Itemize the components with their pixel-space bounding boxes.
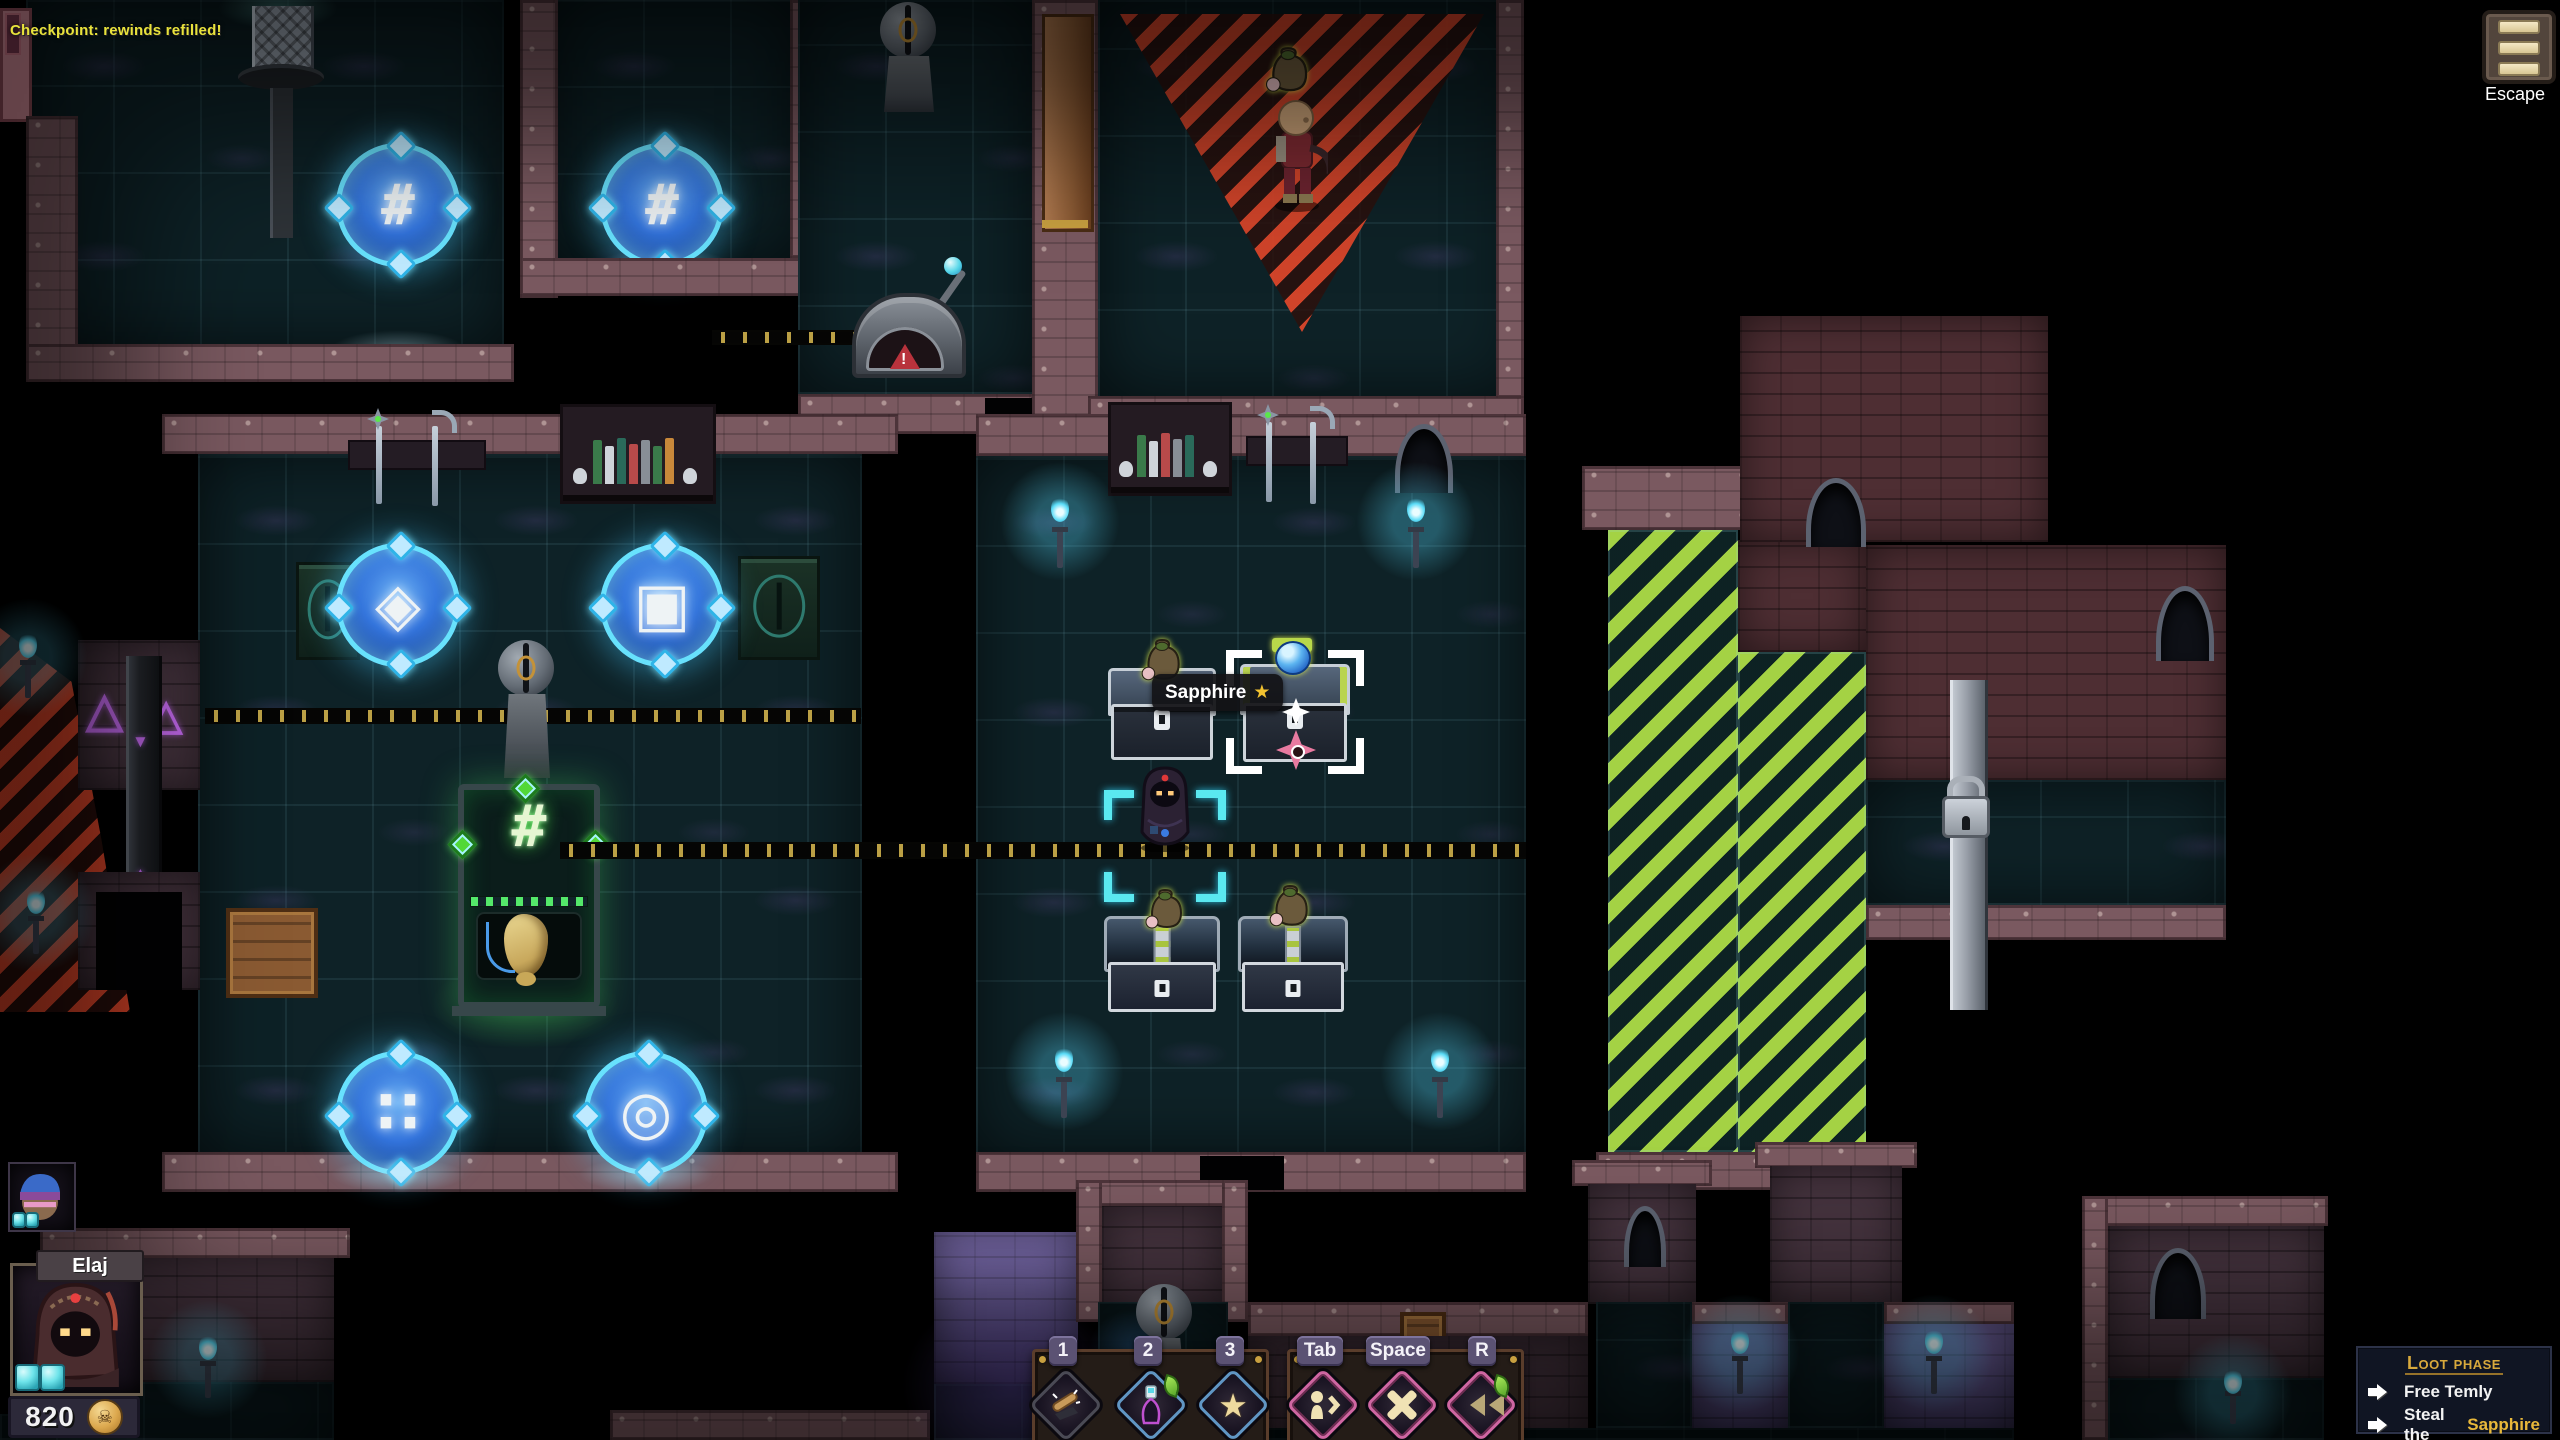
cancel-x-icon <box>1381 1384 1423 1426</box>
torch-flame-icon <box>1407 496 1425 522</box>
bookshelf <box>1108 402 1232 496</box>
hotkey-1[interactable]: 1 <box>1049 1336 1077 1366</box>
torch-arm <box>200 1361 216 1366</box>
torch-arm <box>28 916 44 921</box>
torch-arm <box>1052 527 1068 532</box>
game-viewport: # # ! <box>0 0 2560 1440</box>
eye-statue-e <box>498 640 554 696</box>
alarm-lever[interactable]: ! <box>852 282 958 378</box>
eye-statue-j <box>1136 1284 1192 1340</box>
scythe-icon <box>1310 422 1316 504</box>
tile-corner <box>1104 790 1134 820</box>
standing-torch <box>1404 496 1428 568</box>
torch-flame-icon <box>19 632 37 658</box>
chest-lock-icon <box>1155 980 1170 997</box>
torch-stem <box>2230 1395 2236 1424</box>
portal-ring[interactable]: ◎ <box>584 1051 708 1175</box>
wall-e-bottom <box>162 1152 898 1192</box>
objective-text: Free Temly <box>2404 1382 2493 1402</box>
wall-br-top-2 <box>1755 1142 1917 1168</box>
swap-character-icon <box>1302 1384 1344 1426</box>
wall-br-block-2 <box>1770 1166 1902 1304</box>
hotkey-tab[interactable]: Tab <box>1297 1336 1343 1366</box>
loot-bag-icon[interactable] <box>1142 888 1188 934</box>
staff-gem-icon <box>375 416 381 422</box>
staff-gem-icon <box>1265 412 1271 418</box>
gem-icon <box>40 1364 65 1391</box>
temly-satchel-icon <box>516 972 536 986</box>
player-portrait[interactable] <box>10 1263 143 1396</box>
wall-green-notch <box>1738 540 1866 652</box>
skull-bookend-icon <box>683 468 697 484</box>
book-spine <box>605 446 614 484</box>
hazard-zone-left <box>1608 530 1738 1152</box>
loot-bag-icon[interactable] <box>1262 46 1314 98</box>
doorway-e-left <box>96 892 182 990</box>
skull-bookend-icon <box>573 468 587 484</box>
room-j-frame-right <box>1222 1180 1248 1322</box>
locked-gate-track <box>1950 680 1988 1010</box>
torch-flame-icon <box>27 888 45 914</box>
objectives-title: Loot phase <box>2405 1354 2503 1375</box>
objective-steal-sapphire: Steal the Sapphire <box>2368 1405 2540 1440</box>
panel-stud <box>1510 1356 1517 1363</box>
tile-corner <box>1196 872 1226 902</box>
portal-hash-icon: # <box>645 173 679 238</box>
wall-right-upper <box>1740 316 2048 542</box>
padlock-icon[interactable] <box>1936 742 1996 838</box>
torch-flame-icon <box>1731 1328 1749 1354</box>
gem-icon <box>12 1212 26 1228</box>
eye-banner <box>738 556 820 660</box>
standing-torch <box>1428 1046 1452 1118</box>
book-spine <box>653 446 662 484</box>
standing-torch <box>1048 496 1072 568</box>
objective-text: Steal the <box>2404 1405 2462 1440</box>
torch-arm <box>1926 1356 1942 1361</box>
wall-torch <box>1728 1328 1752 1394</box>
book-spine <box>629 444 638 484</box>
wall-k <box>2108 1226 2324 1378</box>
objective-free-temly: Free Temly <box>2368 1382 2540 1402</box>
panel-stud <box>1039 1356 1046 1363</box>
hazard-zone-right <box>1738 652 1866 1152</box>
star-ability-icon: ★ <box>1212 1384 1254 1426</box>
rewind-icon <box>1460 1384 1502 1426</box>
hotkey-space[interactable]: Space <box>1366 1336 1430 1366</box>
floor-k <box>2108 1378 2324 1440</box>
book-spine <box>1137 435 1146 477</box>
rack-bar <box>1246 436 1348 466</box>
hotkey-3[interactable]: 3 <box>1216 1336 1244 1366</box>
machine-cavity <box>476 912 582 980</box>
padlock-keyhole <box>1962 816 1970 830</box>
portal-hash-icon: # <box>381 173 415 238</box>
floor-br-1 <box>1596 1302 1692 1428</box>
tooltip-star-icon: ★ <box>1253 681 1270 704</box>
wall-b-left <box>520 0 558 298</box>
wall-br-cap-2 <box>1884 1302 2014 1324</box>
menu-bar-icon <box>2498 20 2540 34</box>
polearm-icon <box>432 426 438 506</box>
torch-flame-icon <box>1055 1046 1073 1072</box>
portal-dots-icon: ∷ <box>377 1078 419 1148</box>
chain-track-c <box>712 330 862 345</box>
torch-stem <box>1437 1081 1443 1118</box>
panel-stud <box>1255 1356 1262 1363</box>
portal-square-icon: ▣ <box>634 570 691 640</box>
torch-stem <box>33 920 39 954</box>
track-arrow-icon: ▼ <box>132 732 149 752</box>
triangle-rune-icon: △ <box>86 682 123 738</box>
gem-icon <box>15 1364 40 1391</box>
torch-stem <box>1057 531 1063 568</box>
wall-br-torchwall-2 <box>1884 1324 2014 1440</box>
torch-arm <box>1732 1356 1748 1361</box>
gold-counter: 820 ☠ <box>8 1396 140 1438</box>
torch-stem <box>205 1365 211 1398</box>
wall-b-bottom <box>520 258 806 296</box>
player-nameplate: Elaj <box>36 1250 144 1282</box>
machine-led-strip <box>470 896 588 907</box>
torch-stem <box>1931 1360 1937 1394</box>
torch-arm <box>1056 1077 1072 1082</box>
wall-topleft-bottom <box>26 344 514 382</box>
escape-label: Escape <box>2470 84 2560 105</box>
wall-topleft-side <box>26 116 78 348</box>
item-tooltip: Sapphire ★ <box>1152 674 1283 711</box>
wall-k-left <box>2082 1196 2108 1440</box>
cloak-potion-icon <box>1130 1384 1172 1426</box>
wall-e-top <box>162 414 898 454</box>
objective-arrow-icon <box>2368 1384 2395 1400</box>
door-pillar-band <box>1042 220 1088 228</box>
hotkey-2[interactable]: 2 <box>1134 1336 1162 1366</box>
book-spine <box>1173 439 1182 477</box>
room-j-frame-left <box>1076 1180 1102 1322</box>
torch-flame-icon <box>199 1334 217 1360</box>
menu-bar-icon <box>2498 62 2540 76</box>
right-corridor-floor <box>1866 780 2226 905</box>
wall-torch <box>1922 1328 1946 1394</box>
checkpoint-toast: Checkpoint: rewinds refilled! <box>10 22 222 39</box>
torch-stem <box>1061 1081 1067 1118</box>
book-spine <box>665 438 674 484</box>
torch-flame-icon <box>1051 496 1069 522</box>
tile-corner <box>1196 790 1226 820</box>
gold-amount: 820 <box>25 1401 75 1433</box>
gem-icon <box>25 1212 39 1228</box>
chain-track-f <box>560 842 1526 859</box>
guard-character[interactable] <box>1266 96 1328 212</box>
temly-outline <box>486 922 515 973</box>
cursor-white-star <box>1282 698 1310 726</box>
lamp-tower <box>252 6 314 70</box>
wall-br-top-1 <box>1572 1160 1712 1186</box>
staff-icon <box>376 426 382 504</box>
floor-br-2 <box>1788 1302 1884 1428</box>
portal-diamond[interactable]: ◈ <box>336 543 460 667</box>
machine-hash-icon: # <box>512 792 547 860</box>
chest-lock-icon <box>1286 980 1301 997</box>
objective-arrow-icon <box>2368 1417 2395 1433</box>
wall-d-right <box>1496 0 1524 398</box>
warning-triangle-icon: ! <box>890 329 920 369</box>
book-spine <box>641 440 650 484</box>
skull-coin-icon: ☠ <box>87 1399 123 1435</box>
torch-arm <box>20 660 36 665</box>
lamp-base <box>238 64 324 90</box>
bracket-corner <box>1328 650 1364 686</box>
book-spine <box>1149 441 1158 477</box>
torch-arm <box>1432 1077 1448 1082</box>
torch-flame-icon <box>1431 1046 1449 1072</box>
portal-diamond-icon: ◈ <box>375 570 421 640</box>
wooden-crate[interactable] <box>226 908 318 998</box>
torch-arm <box>1408 527 1424 532</box>
wall-torch <box>16 632 40 698</box>
torch-flame-icon <box>2224 1368 2242 1394</box>
bracket-corner <box>1328 738 1364 774</box>
portal-hash-b[interactable]: # <box>600 143 724 267</box>
rack-bar <box>348 440 486 470</box>
menu-bar-icon <box>2498 41 2540 55</box>
tooltip-label: Sapphire <box>1165 682 1246 704</box>
staff-icon <box>1266 422 1272 502</box>
melee-attack-icon <box>1045 1384 1087 1426</box>
wall-right-corridor-bottom <box>1866 905 2226 940</box>
wall-bc-band <box>610 1410 930 1440</box>
wall-torch <box>24 888 48 954</box>
wall-green-top <box>1582 466 1754 530</box>
portal-ring-icon: ◎ <box>620 1078 672 1148</box>
statue-pedestal <box>884 56 934 112</box>
skull-bookend-icon <box>1203 461 1217 477</box>
book-spine <box>1161 433 1170 477</box>
tile-corner <box>1104 872 1134 902</box>
scythe-hook-icon <box>1310 406 1335 429</box>
book-spine <box>617 438 626 484</box>
wall-torch <box>2222 1368 2244 1424</box>
wall-right-mid <box>1866 545 2226 780</box>
torch-stem <box>25 664 31 698</box>
wall-br-cap-1 <box>1692 1302 1788 1324</box>
portal-dots[interactable]: ∷ <box>336 1051 460 1175</box>
standing-torch <box>1052 1046 1076 1118</box>
bookshelf <box>560 404 716 504</box>
objectives-panel: Loot phase Free Temly Steal the Sapphire <box>2356 1346 2552 1434</box>
book-spine <box>593 440 602 484</box>
portal-hash-a[interactable]: # <box>336 143 460 267</box>
escape-menu-button[interactable] <box>2482 10 2556 84</box>
chest-lock-icon <box>1154 710 1170 730</box>
prisoner-machine[interactable]: # <box>458 784 600 1008</box>
objective-highlight: Sapphire <box>2467 1415 2540 1435</box>
weapon-rack <box>340 400 490 506</box>
cursor-center-dot <box>1291 745 1305 759</box>
polearm-hook-icon <box>432 410 457 433</box>
loot-bag-icon[interactable] <box>1266 884 1314 932</box>
player-character[interactable] <box>1132 760 1198 852</box>
portal-square[interactable]: ▣ <box>600 543 724 667</box>
lamp-pole <box>270 88 293 238</box>
weapon-rack <box>1240 398 1350 506</box>
party-member-portrait[interactable] <box>8 1162 76 1232</box>
statue-pedestal <box>504 694 550 778</box>
door-pillar[interactable] <box>1042 14 1094 232</box>
wall-torch <box>196 1334 220 1398</box>
hotkey-r[interactable]: R <box>1468 1336 1496 1366</box>
book-spine <box>1185 435 1194 477</box>
eye-statue-c <box>880 2 936 58</box>
eye-emblem-icon <box>753 575 805 638</box>
machine-feet <box>452 1006 606 1016</box>
bracket-corner <box>1226 738 1262 774</box>
torch-stem <box>1413 531 1419 568</box>
torch-flame-icon <box>1925 1328 1943 1354</box>
wall-k-top <box>2082 1196 2328 1226</box>
torch-stem <box>1737 1360 1743 1394</box>
skull-bookend-icon <box>1119 461 1133 477</box>
